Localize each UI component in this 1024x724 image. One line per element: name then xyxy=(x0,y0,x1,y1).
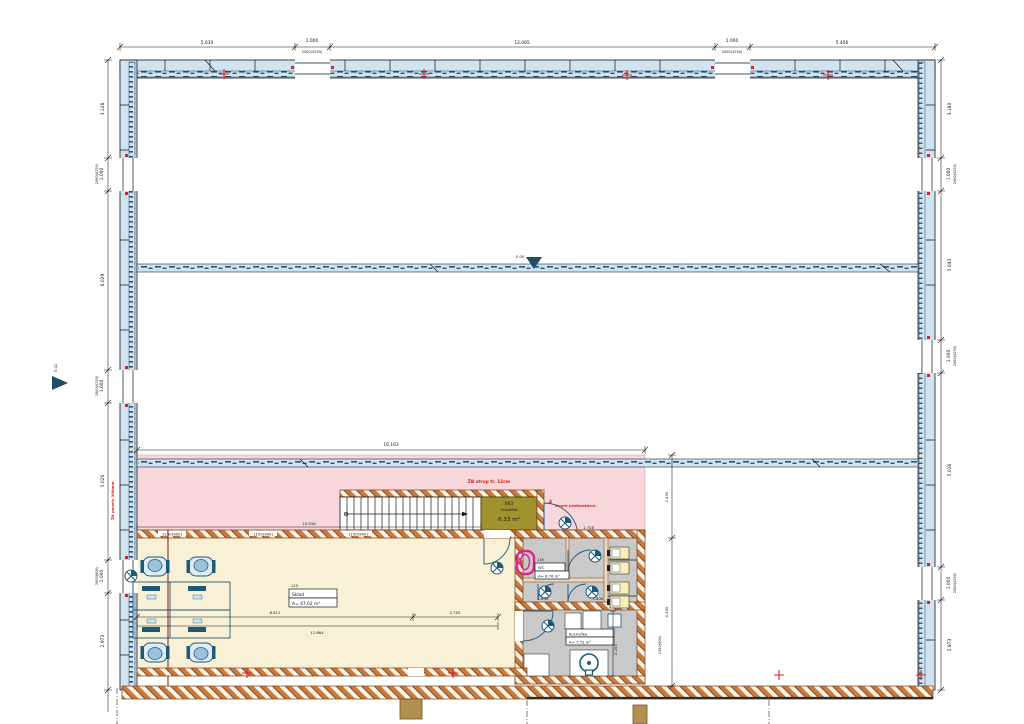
dim-right-2: 5.043 xyxy=(947,259,953,272)
dim-right-3: 5.026 xyxy=(947,464,953,477)
window-left-2 xyxy=(119,366,138,407)
dim-office-b: 2.752 xyxy=(450,610,461,615)
dim-right-w3: 1.000 xyxy=(946,577,952,590)
fire-door-note-index: 4 xyxy=(549,499,552,505)
window-right-3 xyxy=(917,563,936,604)
dim-top-2: 12.065 xyxy=(514,40,530,46)
floor-plan-canvas: E-00 E-02 ŽB strop tl. 12cm ŽB panely 30… xyxy=(0,0,1024,724)
dim-top-3: 5.406 xyxy=(836,40,849,46)
stairs-room-number: 063 xyxy=(505,501,514,507)
level-marker-e02-label: E-02 xyxy=(54,364,58,372)
storage-room-number: 115 xyxy=(291,583,299,588)
dim-hall-b: 4.300 xyxy=(664,606,669,617)
lintel-label-3: 1150(900) xyxy=(348,532,368,537)
door-closer-icon xyxy=(559,517,571,529)
lintel-label-2: 1150(900) xyxy=(253,532,273,537)
dim-top-w1-sub: 2000(4250) xyxy=(302,50,323,54)
wc-dim-b: 1.830 xyxy=(593,596,604,601)
kitchen-counter xyxy=(565,613,581,629)
window-top-2 xyxy=(711,59,754,79)
dim-right-w3-sub: 2000(4250) xyxy=(953,572,957,593)
wc-room-area: A= 6.76 m² xyxy=(538,574,560,579)
window-right-1 xyxy=(917,154,936,195)
wall-panels-note: ŽB panely 300mm xyxy=(110,481,115,520)
stairs-room-area: 6.33 m² xyxy=(498,516,520,523)
office-chair xyxy=(141,643,170,662)
dim-office-total: 11.664 xyxy=(310,630,324,635)
storage-room-name: Sklad xyxy=(292,592,304,598)
dim-left-3: 5.020 xyxy=(100,475,106,488)
storage-room-area: A= 47.02 m² xyxy=(292,601,320,607)
dim-office-width: 10.936 xyxy=(302,521,316,526)
stair-door-dim: 1.728 xyxy=(583,525,594,530)
level-marker-e00-label: E-00 xyxy=(516,255,524,259)
door-closer-icon xyxy=(589,550,601,562)
window-top-1 xyxy=(291,59,334,79)
dim-left-w3: 1.000 xyxy=(99,570,105,583)
steel-beams xyxy=(137,264,918,467)
level-marker-e02: E-02 xyxy=(52,364,68,390)
dim-office-a: 8.911 xyxy=(270,610,281,615)
dim-top-w2: 1.000 xyxy=(726,38,739,44)
kitchen-depth-dim: 2.200 xyxy=(613,644,618,655)
office-chair xyxy=(187,643,216,662)
dim-left-w2: 1.000 xyxy=(99,380,105,393)
column-stub xyxy=(633,705,647,724)
dim-right-w1: 1.000 xyxy=(946,168,952,181)
dim-top-1: 5.030 xyxy=(201,40,214,46)
dim-left-w3-sub: 2000(900) xyxy=(95,566,99,585)
fire-door-note: Dveře protipožární. xyxy=(555,503,597,508)
kitchen-room-area: A= 7.72 m² xyxy=(569,640,591,645)
lintel-label-1: 1150(900) xyxy=(162,532,182,537)
dim-right-w1-sub: 2000(4250) xyxy=(953,163,957,184)
dim-left-w1-sub: 2000(4250) xyxy=(95,163,99,184)
kitchen-room-name: Kuchyňka xyxy=(569,632,587,637)
dim-hall-lintel: 1150(900) xyxy=(658,635,662,654)
stairs-room-name: Schodiště xyxy=(500,508,517,512)
wc-room-name: WC xyxy=(538,565,545,570)
door-closer-icon xyxy=(491,562,503,574)
office-chair xyxy=(187,557,216,576)
dim-left-w2-sub: 2000(4250) xyxy=(95,375,99,396)
window-right-2 xyxy=(917,336,936,377)
dim-slab-width: 16.163 xyxy=(383,442,399,448)
dim-right-4: 2.973 xyxy=(947,639,953,652)
window-left-1 xyxy=(119,154,138,195)
wc-dim-a: 1.650 xyxy=(538,596,549,601)
office-chair xyxy=(141,557,170,576)
door-closer-icon xyxy=(125,570,137,582)
door-closer-icon xyxy=(542,620,554,632)
dim-right-w2-sub: 2000(4250) xyxy=(953,345,957,366)
floor-plan-drawing: E-00 E-02 ŽB strop tl. 12cm ŽB panely 30… xyxy=(0,0,1024,724)
wc-room-number: 116 xyxy=(537,558,544,562)
dim-left-2: 6.029 xyxy=(100,274,106,287)
kitchen-sink xyxy=(608,614,621,627)
floor-drain-icon xyxy=(570,650,608,676)
dim-hall-a: 2.400 xyxy=(664,491,669,502)
dim-right-w2: 1.000 xyxy=(946,350,952,363)
kitchen-appliance xyxy=(524,654,549,676)
dim-top-w1: 1.000 xyxy=(306,38,319,44)
dim-left-1: 3.128 xyxy=(100,103,106,116)
column-stub xyxy=(400,699,422,719)
dim-right-1: 3.180 xyxy=(947,103,953,116)
dim-left-4: 2.973 xyxy=(100,635,106,648)
survey-cross xyxy=(774,670,784,680)
dim-top-w2-sub: 2000(4250) xyxy=(722,50,743,54)
dim-left-w1: 1.000 xyxy=(99,168,105,181)
